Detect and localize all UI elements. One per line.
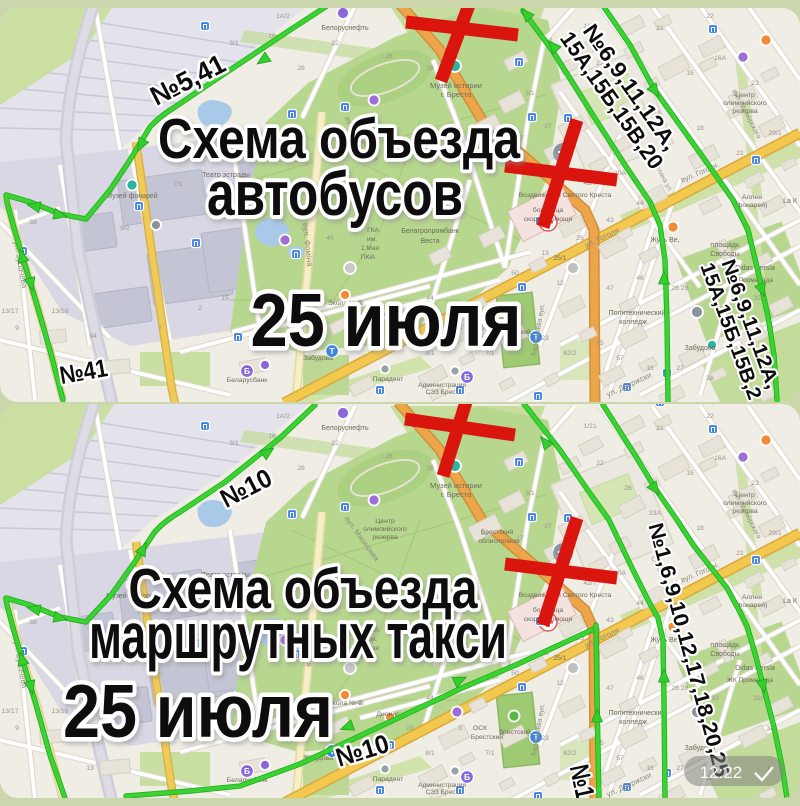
svg-text:12:22: 12:22 — [700, 763, 743, 782]
svg-text:25 июля: 25 июля — [63, 669, 333, 753]
svg-text:автобусов: автобусов — [207, 160, 463, 229]
svg-text:25 июля: 25 июля — [251, 278, 522, 362]
svg-text:резерва: резерва — [372, 534, 398, 541]
svg-text:Центр: Центр — [375, 518, 395, 525]
svg-text:маршрутных такси: маршрутных такси — [89, 600, 507, 672]
svg-text:олимпийского: олимпийского — [363, 525, 407, 533]
